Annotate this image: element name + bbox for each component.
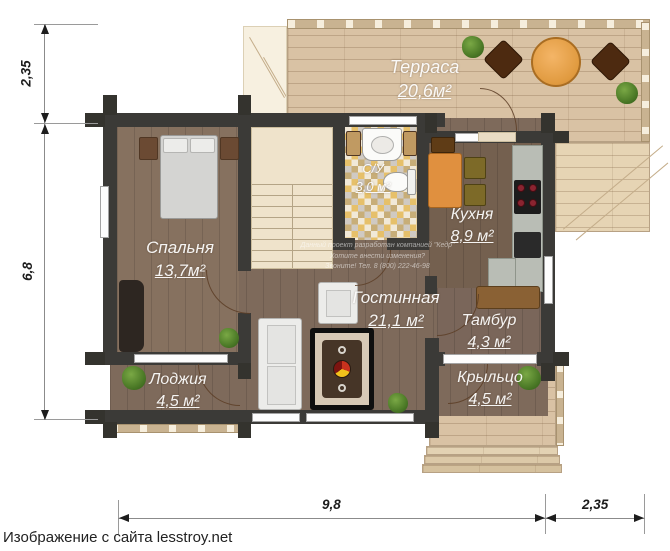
- room-name: Лоджия: [122, 369, 234, 391]
- log-tab: [541, 113, 555, 133]
- plant: [616, 82, 638, 104]
- pillow: [190, 138, 215, 153]
- burner: [517, 184, 525, 192]
- side-deck: [555, 142, 650, 232]
- window: [100, 186, 109, 238]
- room-area: 4,3 м²: [468, 332, 511, 354]
- log-tab: [85, 410, 105, 424]
- room-area: 20,6м²: [398, 79, 451, 103]
- kitchen-table: [428, 153, 462, 208]
- terrace-top-railing: [287, 19, 650, 29]
- dim-ext-tick: [644, 494, 645, 534]
- wardrobe: [119, 280, 144, 352]
- room-area: 13,7м²: [155, 260, 205, 283]
- room-label-bedroom: Спальня 13,7м²: [118, 237, 242, 283]
- loggia-railing: [110, 424, 242, 433]
- dim-arrow: [546, 514, 556, 522]
- watermark-line3: Звоните! Тел. 8 (800) 222-46-98: [270, 262, 485, 273]
- wall-left: [103, 113, 117, 365]
- gable-line: [249, 37, 285, 98]
- room-name: Спальня: [118, 237, 242, 260]
- porch-right-railing: [556, 364, 564, 446]
- tambur-bench: [476, 286, 540, 309]
- room-name: Гостинная: [328, 287, 464, 310]
- room-area: 3,0 м²: [356, 178, 391, 196]
- sink: [362, 128, 402, 161]
- wall-bathroom-left: [333, 125, 345, 250]
- terrace-doorway: [478, 132, 516, 142]
- log-tab: [425, 113, 437, 133]
- dim-arrow: [634, 514, 644, 522]
- bath-cabinet: [346, 131, 361, 156]
- dim-label-bottom-right: 2,35: [582, 497, 608, 512]
- dim-arrow: [41, 410, 49, 420]
- wall-right: [541, 131, 555, 365]
- room-label-terrace: Терраса 20,6м²: [352, 55, 497, 104]
- window: [349, 116, 417, 125]
- terrace-table: [531, 37, 581, 87]
- pillow: [163, 138, 188, 153]
- room-name: Кухня: [430, 204, 514, 226]
- watermark-text: Данный проект разработан компанией "Кедр…: [270, 241, 485, 273]
- room-name: Тамбур: [437, 310, 541, 332]
- dim-label-left-main: 6,8: [20, 262, 35, 281]
- window: [306, 413, 414, 422]
- floor-plan: Терраса 20,6м² Спальня 13,7м² С/У 3,0 м²…: [0, 0, 670, 551]
- roof-line: [563, 145, 663, 229]
- watermark-line1: Данный проект разработан компанией "Кедр…: [270, 241, 485, 252]
- room-area: 4,5 м²: [157, 391, 200, 413]
- toilet-tank: [407, 169, 416, 195]
- porch-step: [426, 446, 558, 455]
- room-label-loggia: Лоджия 4,5 м²: [122, 369, 234, 412]
- burner: [529, 199, 537, 207]
- window: [443, 354, 537, 364]
- fireplace-vent: [338, 384, 346, 392]
- sofa: [258, 318, 302, 410]
- log-tab: [103, 95, 117, 115]
- room-label-bathroom: С/У 3,0 м²: [347, 160, 399, 195]
- window: [252, 413, 300, 422]
- nightstand: [139, 137, 158, 160]
- room-label-tambur: Тамбур 4,3 м²: [437, 310, 541, 353]
- porch-step: [424, 455, 560, 464]
- dim-label-left-top: 2,35: [19, 60, 34, 86]
- room-area: 4,5 м²: [469, 389, 512, 411]
- kitchen-chair: [431, 137, 455, 153]
- sofa-cushion: [267, 325, 296, 364]
- watermark-line2: Хотите внести изменения?: [270, 252, 485, 263]
- window: [544, 256, 553, 304]
- fireplace-vent: [338, 346, 346, 354]
- stove: [514, 180, 541, 214]
- log-tab: [85, 352, 105, 365]
- sink-bowl: [371, 136, 394, 154]
- room-name: Крыльцо: [430, 367, 550, 389]
- kitchen-chair: [464, 157, 486, 179]
- roof-line: [576, 163, 669, 241]
- burner: [517, 199, 525, 207]
- log-tab: [238, 422, 251, 438]
- bath-cabinet: [403, 131, 417, 156]
- terrace-right-railing: [641, 22, 650, 142]
- site-caption: Изображение с сайта lesstroy.net: [3, 529, 232, 546]
- log-tab: [85, 113, 105, 127]
- dim-arrow: [535, 514, 545, 522]
- dim-line-bottom: [118, 518, 645, 519]
- dim-label-bottom-main: 9,8: [322, 497, 341, 512]
- dim-arrow: [119, 514, 129, 522]
- kitchen-sink-unit: [514, 232, 541, 258]
- dim-arrow: [41, 124, 49, 134]
- room-label-porch: Крыльцо 4,5 м²: [430, 367, 550, 410]
- nightstand: [220, 137, 239, 160]
- dim-arrow: [41, 24, 49, 34]
- room-name: С/У: [347, 160, 399, 178]
- fireplace: [310, 328, 374, 410]
- dim-line-left: [44, 25, 45, 420]
- plant: [388, 393, 408, 413]
- plant: [219, 328, 239, 348]
- log-tab: [425, 422, 439, 438]
- room-area: 21,1 м²: [368, 310, 423, 333]
- log-tab: [553, 352, 569, 366]
- log-tab: [103, 422, 117, 438]
- window: [134, 354, 228, 363]
- fire-icon: [333, 360, 351, 378]
- log-tab: [238, 95, 251, 115]
- burner: [529, 184, 537, 192]
- room-name: Терраса: [352, 55, 497, 79]
- porch-step: [422, 464, 562, 473]
- fireplace-hearth: [322, 340, 362, 398]
- kitchen-chair: [464, 184, 486, 206]
- log-tab: [553, 131, 569, 143]
- sofa-cushion: [267, 366, 296, 405]
- kitchen-counter: [512, 145, 543, 292]
- dim-arrow: [41, 113, 49, 123]
